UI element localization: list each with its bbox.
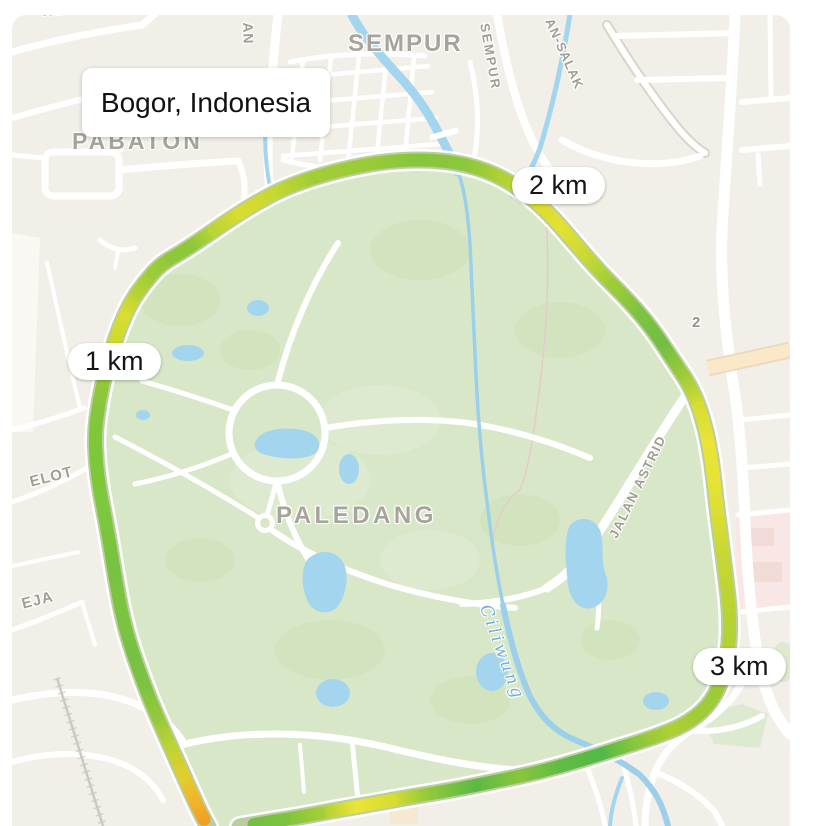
distance-marker-2km: 2 km [512,167,605,204]
map-label-an: AN [240,22,257,45]
distance-marker-3km: 3 km [693,648,786,685]
major-road-peach [708,350,790,368]
map-label-paledang: PALEDANG [276,502,437,530]
map-label-2: 2 [692,314,700,331]
map-canvas[interactable]: PABATONSEMPURPALEDANGJALAN ASTRIDCiliwun… [12,15,790,826]
location-card: Bogor, Indonesia [82,68,330,137]
distance-marker-1km: 1 km [68,343,161,380]
map-label-sempur: SEMPUR [348,30,463,58]
location-card-text: Bogor, Indonesia [101,87,311,119]
